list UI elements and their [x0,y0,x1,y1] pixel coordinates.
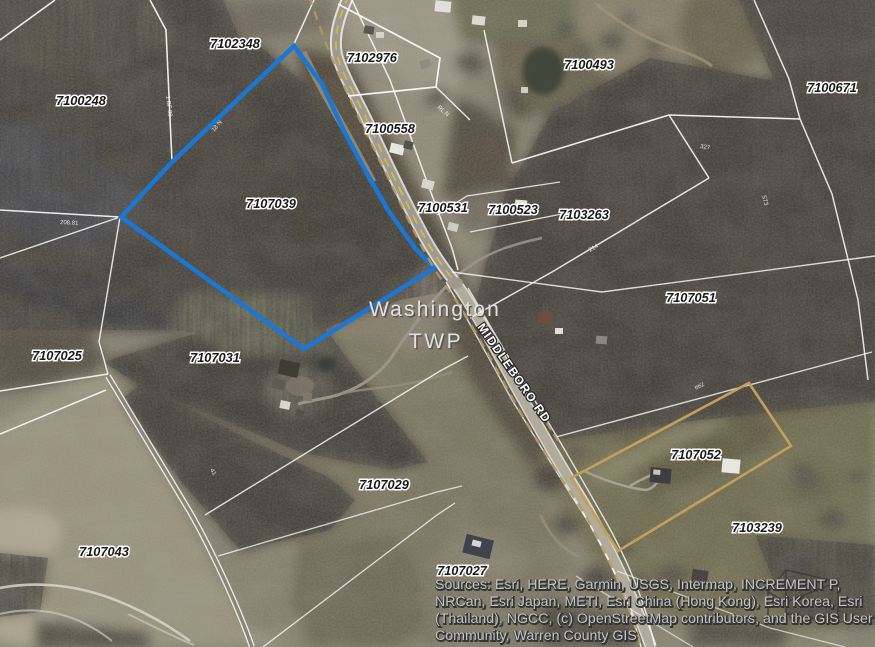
svg-text:7107051: 7107051 [666,290,716,305]
svg-text:7102348: 7102348 [210,36,261,51]
svg-text:NRCan, Esri Japan, METI, Esri: NRCan, Esri Japan, METI, Esri China (Hon… [435,594,862,610]
svg-text:(Thailand), NGCC, (c) OpenStre: (Thailand), NGCC, (c) OpenStreetMap cont… [435,611,873,627]
svg-text:7100531: 7100531 [418,200,468,215]
svg-text:7100248: 7100248 [56,93,107,108]
svg-text:7103239: 7103239 [732,520,783,535]
svg-text:208.81: 208.81 [60,220,79,227]
svg-text:Sources: Esri, HERE, Garmin, U: Sources: Esri, HERE, Garmin, USGS, Inter… [435,577,841,593]
svg-text:7107052: 7107052 [671,447,721,462]
svg-text:7107025: 7107025 [32,348,83,363]
svg-text:7100493: 7100493 [564,57,614,72]
svg-text:7102976: 7102976 [347,50,398,65]
svg-text:7107043: 7107043 [79,544,129,559]
svg-text:7107027: 7107027 [437,563,488,578]
svg-text:7107039: 7107039 [246,196,297,211]
svg-text:7100558: 7100558 [365,121,416,136]
svg-text:7100671: 7100671 [807,80,857,95]
svg-text:7107031: 7107031 [190,350,240,365]
svg-text:TWP: TWP [409,330,463,353]
svg-text:Community, Warren County GIS: Community, Warren County GIS [435,628,637,644]
svg-text:7103263: 7103263 [559,207,609,222]
svg-text:7107029: 7107029 [359,477,410,492]
svg-text:7100523: 7100523 [488,202,538,217]
svg-text:Washington: Washington [369,298,501,321]
